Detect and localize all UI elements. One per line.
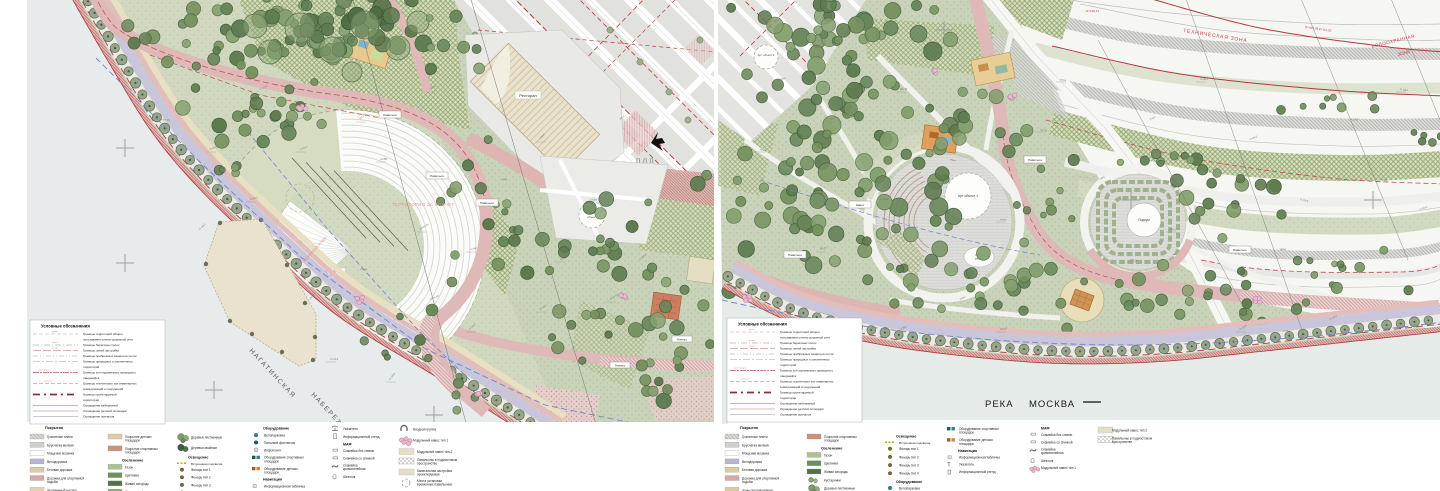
svg-text:Павильон: Павильон — [1028, 158, 1042, 162]
svg-text:площадок: площадок — [959, 442, 974, 446]
svg-text:Павильон: Павильон — [1233, 248, 1247, 252]
svg-text:Велопарковка: Велопарковка — [899, 486, 920, 490]
svg-text:территории: территории — [780, 396, 796, 400]
svg-text:Покрытия: Покрытия — [740, 426, 758, 430]
svg-text:Гранитные плиты: Гранитные плиты — [742, 435, 769, 439]
svg-text:Газон: Газон — [125, 465, 133, 469]
svg-text:Шезлонг: Шезлонг — [343, 475, 356, 479]
svg-text:О 118.2: О 118.2 — [1200, 79, 1209, 81]
svg-text:Границы прибрежных защитных по: Границы прибрежных защитных полос — [83, 354, 137, 358]
svg-text:Деревья лиственные: Деревья лиственные — [824, 487, 855, 491]
svg-text:территории: территории — [83, 398, 99, 402]
svg-text:Питьевой фонтанчик: Питьевой фонтанчик — [264, 441, 296, 445]
svg-text:Арт объект 3: Арт объект 3 — [758, 53, 775, 57]
svg-text:ТЕРРИТОРИЯ ЗС КОВЧЕГ: ТЕРРИТОРИЯ ЗС КОВЧЕГ — [392, 202, 455, 207]
svg-text:-R=190,41: -R=190,41 — [1085, 9, 1099, 13]
svg-text:застр: застр — [749, 346, 755, 348]
svg-text:Деревья хвойные: Деревья хвойные — [191, 446, 217, 450]
svg-text:плп: плп — [636, 156, 656, 165]
svg-text:Информационная табличка: Информационная табличка — [959, 456, 1000, 460]
svg-text:пространстве: пространстве — [417, 462, 437, 466]
svg-text:проектируемая: проектируемая — [417, 473, 440, 477]
svg-text:Границы линий застройки: Границы линий застройки — [780, 347, 816, 351]
svg-text:Входная группа: Входная группа — [413, 428, 436, 432]
svg-text:+2.450: +2.450 — [360, 269, 368, 271]
svg-text:Ограждение детской площадки: Ограждение детской площадки — [780, 407, 824, 411]
svg-text:Павильон: Павильон — [788, 253, 802, 257]
svg-text:ходьбы: ходьбы — [742, 480, 754, 484]
svg-text:ландшафта: ландшафта — [83, 376, 100, 380]
svg-text:+3.600: +3.600 — [500, 179, 508, 181]
svg-text:берег: берег — [52, 342, 58, 344]
svg-text:Границы прибрежных защитных по: Границы прибрежных защитных полос — [780, 352, 834, 356]
svg-text:Границы технических зон инжене: Границы технических зон инженерных — [83, 382, 137, 386]
svg-text:площадок: площадок — [959, 431, 974, 435]
svg-text:берег: берег — [749, 340, 755, 342]
svg-text:Фонарь тип 2: Фонарь тип 2 — [899, 455, 919, 459]
svg-text:Живая изгородь: Живая изгородь — [824, 470, 848, 474]
svg-text:Павильон: Павильон — [383, 113, 397, 117]
svg-text:Брусчатка мелкая: Брусчатка мелкая — [742, 443, 769, 447]
svg-text:Фонарь тип 3: Фонарь тип 3 — [899, 464, 919, 468]
svg-text:Фонарь тип 3: Фонарь тип 3 — [191, 483, 211, 487]
svg-text:коммуникаций и сооружений: коммуникаций и сооружений — [780, 385, 821, 389]
svg-text:территорий: территорий — [780, 363, 796, 367]
svg-text:временных павильонов: временных павильонов — [417, 483, 452, 487]
svg-text:территорий: территорий — [83, 365, 99, 369]
svg-text:Освещение: Освещение — [896, 435, 916, 439]
svg-text:Условные обозначения: Условные обозначения — [41, 324, 90, 329]
svg-text:Кустарники: Кустарники — [824, 478, 841, 482]
svg-text:Ресторан: Ресторан — [519, 93, 536, 98]
svg-text:площадок: площадок — [824, 439, 839, 443]
svg-text:Цветники: Цветники — [125, 474, 139, 478]
svg-text:Границы зон охраняемого природ: Границы зон охраняемого природного — [780, 369, 833, 373]
svg-text:МАФ: МАФ — [1041, 427, 1050, 431]
svg-text:Встроенная подсветка: Встроенная подсветка — [191, 462, 223, 466]
svg-text:Границы береговых полос: Границы береговых полос — [83, 343, 120, 347]
svg-text:Деревья лиственные: Деревья лиственные — [191, 436, 222, 440]
svg-text:Павильон: Павильон — [480, 201, 494, 205]
svg-text:Ограждение набережной: Ограждение набережной — [83, 404, 118, 408]
svg-text:криволинейная: криволинейная — [343, 467, 366, 471]
svg-text:Озеленение: Озеленение — [122, 458, 143, 462]
svg-text:О 120.8: О 120.8 — [330, 359, 339, 361]
svg-text:Цветники: Цветники — [824, 462, 838, 466]
svg-text:Границы береговых полос: Границы береговых полос — [780, 341, 817, 345]
svg-text:Тенельс: Тенельс — [677, 338, 688, 342]
svg-text:Фонарь тип 1: Фонарь тип 1 — [899, 447, 919, 451]
svg-text:площадок: площадок — [264, 459, 279, 463]
svg-text:Оборудование: Оборудование — [263, 427, 289, 431]
svg-text:131.10: 131.10 — [900, 89, 908, 91]
svg-text:Фонарь тип 1: Фонарь тип 1 — [191, 468, 211, 472]
svg-text:Модульный навес тип 1: Модульный навес тип 1 — [1041, 466, 1076, 470]
svg-text:Навигация: Навигация — [263, 478, 282, 482]
svg-text:Информационная табличка: Информационная табличка — [264, 484, 305, 488]
svg-text:МОСКВА: МОСКВА — [1029, 399, 1075, 410]
svg-text:Модульный навес тип-2: Модульный навес тип-2 — [417, 450, 452, 454]
svg-text:охр ландш: охр ландш — [735, 368, 746, 370]
svg-text:Беговая дорожка: Беговая дорожка — [47, 468, 73, 472]
svg-text:пользования улично-дорожной се: пользования улично-дорожной сети — [83, 338, 133, 342]
svg-text:Тенельс: Тенельс — [615, 364, 626, 368]
svg-text:Освещение: Освещение — [188, 456, 208, 460]
svg-text:площадок: площадок — [264, 471, 279, 475]
svg-text:Границы территорий общего: Границы территорий общего — [780, 330, 820, 334]
svg-text:пространстве: пространстве — [1112, 440, 1132, 444]
svg-text:ландшафта: ландшафта — [780, 374, 797, 378]
svg-text:О 120.8: О 120.8 — [880, 199, 889, 201]
svg-text:Покрытия: Покрытия — [45, 426, 63, 430]
svg-text:Границы территорий общего: Границы территорий общего — [83, 332, 123, 336]
svg-text:Информационный стенд: Информационный стенд — [959, 470, 996, 474]
svg-text:уклон: уклон — [749, 329, 756, 331]
svg-text:Ограждение детской площадки: Ограждение детской площадки — [83, 409, 127, 413]
svg-text:техн зон: техн зон — [741, 379, 750, 381]
svg-text:Скамейка со спинкой: Скамейка со спинкой — [1041, 441, 1073, 445]
svg-text:Газон: Газон — [824, 453, 832, 457]
svg-text:Велодорожка: Велодорожка — [742, 460, 762, 464]
svg-text:Границы природных и озелененны: Границы природных и озелененных — [780, 358, 830, 362]
svg-text:Ограждение набережной: Ограждение набережной — [780, 402, 815, 406]
svg-text:Велопарковка: Велопарковка — [264, 434, 285, 438]
svg-text:Навигация: Навигация — [958, 449, 977, 453]
svg-text:Ограждение причалов: Ограждение причалов — [83, 415, 115, 419]
svg-text:Живая изгородь: Живая изгородь — [125, 482, 149, 486]
svg-text:Информационный стенд: Информационный стенд — [343, 435, 380, 439]
svg-text:Мощение мозаика: Мощение мозаика — [47, 452, 74, 456]
svg-text:Подиум: Подиум — [1138, 218, 1149, 222]
svg-text:техн зон: техн зон — [44, 381, 53, 383]
svg-text:площадок: площадок — [125, 451, 140, 455]
svg-text:Встроенная подсветка: Встроенная подсветка — [899, 441, 931, 445]
svg-text:криволинейная: криволинейная — [1041, 451, 1064, 455]
svg-text:Павильон: Павильон — [430, 174, 444, 178]
svg-text:Границы линий застройки: Границы линий застройки — [83, 349, 119, 353]
svg-text:Границы зон охраняемого природ: Границы зон охраняемого природного — [83, 371, 136, 375]
svg-text:Велодорожка: Велодорожка — [47, 460, 67, 464]
svg-text:Гранитные плиты: Гранитные плиты — [47, 435, 74, 439]
svg-text:Границы природных и озелененны: Границы природных и озелененных — [83, 360, 133, 364]
svg-text:Ограждение причалов: Ограждение причалов — [780, 413, 812, 417]
svg-text:+2.450: +2.450 — [380, 159, 388, 161]
svg-text:Скамейка без спинки: Скамейка без спинки — [1041, 433, 1073, 437]
svg-text:ходьбы: ходьбы — [47, 480, 59, 484]
svg-text:Брусчатка мелкая: Брусчатка мелкая — [47, 443, 74, 447]
svg-text:уклон: уклон — [52, 331, 59, 333]
svg-text:пользования улично-дорожной се: пользования улично-дорожной сети — [780, 336, 830, 340]
svg-text:Граница проектируемой: Граница проектируемой — [780, 391, 814, 395]
svg-text:Скамейка со спинкой: Скамейка со спинкой — [343, 457, 375, 461]
svg-text:Границы технических зон инжене: Границы технических зон инженерных — [780, 380, 834, 384]
svg-text:коммуникаций и сооружений: коммуникаций и сооружений — [83, 387, 124, 391]
svg-text:Шезлонг: Шезлонг — [1041, 459, 1054, 463]
svg-text:Мощение мозаика: Мощение мозаика — [742, 452, 769, 456]
svg-text:Указатель: Указатель — [343, 427, 358, 431]
svg-text:МАФ: МАФ — [343, 443, 352, 447]
svg-text:Модульный навес тип 1: Модульный навес тип 1 — [413, 439, 448, 443]
svg-text:Оборудование: Оборудование — [896, 480, 922, 484]
svg-text:Указатель: Указатель — [959, 463, 974, 467]
svg-text:охр ландш: охр ландш — [38, 370, 49, 372]
svg-text:Скамейка без спинки: Скамейка без спинки — [343, 449, 375, 453]
svg-text:Инфопоинт: Инфопоинт — [264, 448, 281, 452]
svg-text:площадок: площадок — [125, 439, 140, 443]
svg-text:РЕКА: РЕКА — [985, 399, 1014, 410]
svg-text:Арт объект 1: Арт объект 1 — [958, 194, 978, 198]
svg-text:застр: застр — [52, 348, 58, 350]
svg-text:Навес: Навес — [856, 203, 865, 207]
svg-text:Фонарь тип 2: Фонарь тип 2 — [191, 476, 211, 480]
svg-text:Граница проектируемой: Граница проектируемой — [83, 393, 117, 397]
svg-text:Фонарь тип 4: Фонарь тип 4 — [899, 472, 919, 476]
svg-text:укреп: укреп — [1280, 249, 1287, 251]
svg-text:Условные обозначения: Условные обозначения — [738, 322, 787, 327]
svg-text:Озеленение: Озеленение — [821, 446, 842, 450]
svg-text:Модульный навес тип 2: Модульный навес тип 2 — [1112, 429, 1147, 433]
svg-text:Беговая дорожка: Беговая дорожка — [742, 468, 768, 472]
